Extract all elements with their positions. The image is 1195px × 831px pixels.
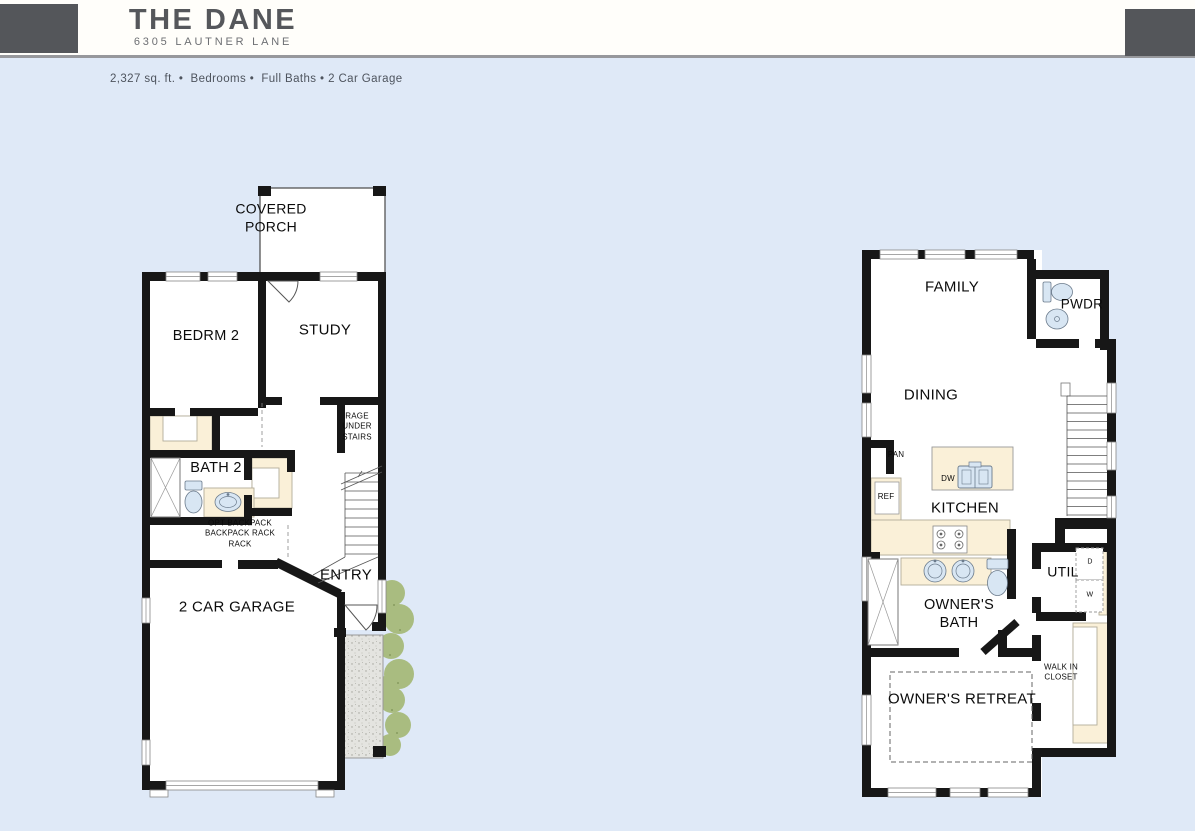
first-floor-plan: COVERED PORCH BEDRM 2 STUDY RAGE UNDER S… (140, 185, 420, 800)
vanity-sink (215, 493, 241, 512)
address-subtitle: 6305 LAUTNER LANE (118, 36, 308, 48)
kitchen-label: KITCHEN (931, 500, 999, 519)
shower (151, 458, 180, 517)
owners-bath-label: OWNER'S BATH (924, 596, 994, 632)
header-left-block (0, 4, 78, 53)
second-floor-drawing (855, 245, 1125, 800)
bath2-label: BATH 2 (190, 459, 242, 477)
family-label: FAMILY (925, 279, 979, 298)
util-label: UTIL (1047, 563, 1079, 581)
storage-under-stairs-label: RAGE UNDER STAIRS (342, 411, 372, 442)
title-block: THE DANE 6305 LAUTNER LANE (118, 5, 308, 48)
washer-label: W (1087, 592, 1094, 601)
specs-line: 2,327 sq. ft. • Bedrooms • Full Baths • … (110, 73, 403, 85)
floorplan-sheet: THE DANE 6305 LAUTNER LANE 2,327 sq. ft.… (0, 0, 1195, 831)
dining-label: DINING (904, 387, 958, 406)
page-title: THE DANE (118, 5, 308, 35)
second-floor-plan: FAMILY PWDR DINING PAN REF DW KITCHEN OW… (855, 245, 1125, 800)
island-sink (958, 462, 992, 488)
pantry-label: PAN (888, 450, 904, 460)
owners-retreat-label: OWNER'S RETREAT (888, 691, 1036, 710)
covered-porch-label: COVERED PORCH (235, 201, 306, 236)
entry-label: ENTRY (320, 567, 372, 586)
shower (868, 559, 898, 645)
first-floor-drawing (140, 185, 420, 800)
header-right-block (1125, 9, 1195, 56)
toilet (987, 559, 1008, 596)
pwdr-label: PWDR (1061, 297, 1103, 314)
header: THE DANE 6305 LAUTNER LANE (0, 0, 1195, 58)
dishwasher-label: DW (941, 474, 955, 484)
dryer-label: D (1087, 559, 1092, 568)
toilet (185, 481, 202, 513)
backpack-rack-label: OPT BACKPACK BACKPACK RACK RACK (205, 518, 275, 549)
entry-walkway (340, 635, 383, 758)
walk-in-closet-label: WALK IN CLOSET (1044, 663, 1078, 684)
garage-door (150, 781, 334, 797)
bedrm2-label: BEDRM 2 (173, 327, 240, 345)
garage-label: 2 CAR GARAGE (179, 599, 295, 618)
cooktop (933, 526, 967, 553)
study-label: STUDY (299, 322, 351, 341)
fridge-label: REF (878, 492, 895, 502)
washer-dryer-boxes (1076, 548, 1103, 612)
